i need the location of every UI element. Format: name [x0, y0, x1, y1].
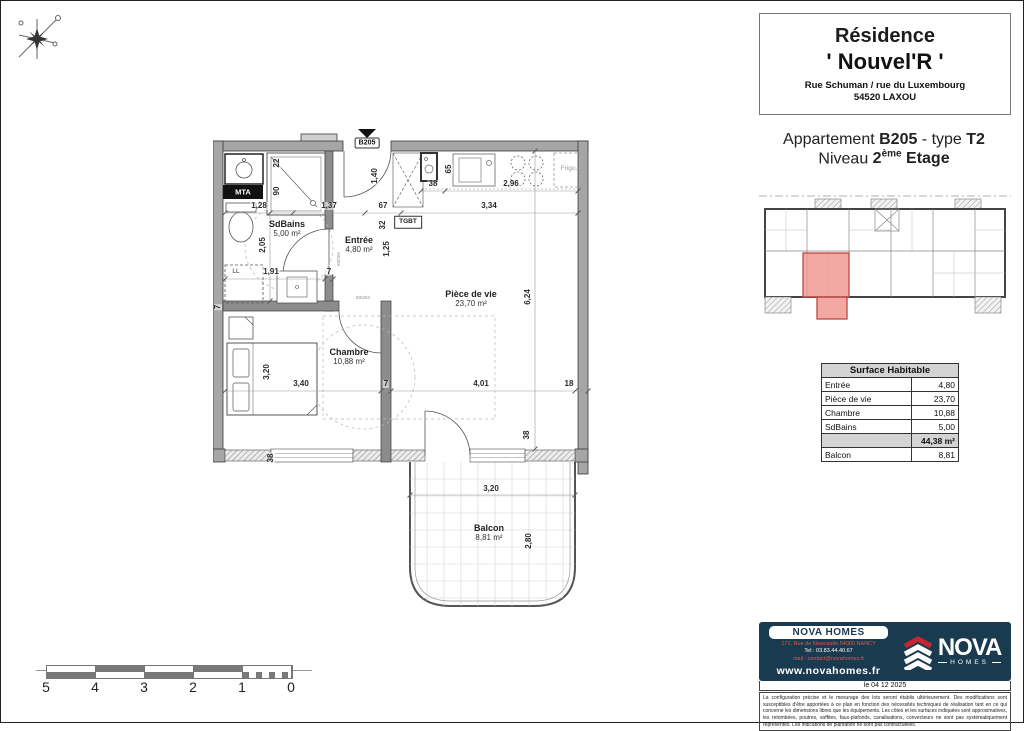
- highlighted-balcony: [817, 297, 847, 319]
- pillow: [233, 349, 249, 377]
- balcony: [410, 462, 575, 606]
- residence-name: ' Nouvel'R ': [760, 49, 1010, 75]
- surface-row-value: 44,38 m²: [912, 434, 959, 448]
- surface-row-name: Pièce de vie: [822, 392, 912, 406]
- footer-block: NOVA HOMES 171, Rue de Newcastle 54000 N…: [759, 622, 1011, 731]
- surface-row-value: 10,88: [912, 406, 959, 420]
- page-border: 22901,281,37673,34382,96651,40322,051,25…: [0, 0, 1024, 723]
- surface-table-title: Surface Habitable: [822, 364, 959, 378]
- cooktop: [511, 156, 543, 186]
- company-mail: mail : contact@novahomes.fr: [765, 656, 892, 663]
- surface-row-value: 4,80: [912, 378, 959, 392]
- compass-rose-icon: [13, 13, 63, 65]
- entry-arrow-icon: [358, 129, 376, 138]
- bedroom-furniture: [227, 317, 317, 415]
- surface-row-name: Balcon: [822, 448, 912, 462]
- company-address: 171, Rue de Newcastle 54000 NANCY: [765, 641, 892, 648]
- kitchen-fixtures: [421, 153, 584, 187]
- windows: [225, 449, 575, 462]
- apartment-line: Appartement B205 - type T2: [759, 131, 1009, 149]
- scale-number: 1: [238, 679, 246, 695]
- logo-subtitle: HOMES: [950, 659, 989, 666]
- scale-number: 4: [91, 679, 99, 695]
- bathroom-fixtures: [223, 153, 325, 303]
- residence-address: Rue Schuman / rue du Luxembourg: [760, 80, 1010, 91]
- surface-row-name: [822, 434, 912, 448]
- wc-tank: [226, 203, 256, 212]
- scale-bar-segments: [46, 665, 293, 679]
- level-line: Niveau 2ème Etage: [759, 149, 1009, 168]
- legal-disclaimer: La configuration précise et le mesurage …: [759, 692, 1011, 731]
- scale-number: 5: [42, 679, 50, 695]
- residence-label: Résidence: [760, 25, 1010, 48]
- company-tel: Tel : 03.83.44.40.67: [765, 648, 892, 655]
- washing-machine: [225, 265, 263, 303]
- residence-city: 54520 LAXOU: [760, 92, 1010, 103]
- surface-table-row: Balcon8,81: [822, 448, 959, 462]
- surface-table-row: 44,38 m²: [822, 434, 959, 448]
- plan-date: le 04 12 2025: [759, 681, 1011, 691]
- surface-table-row: SdBains5,00: [822, 420, 959, 434]
- surface-table-row: Entrée4,80: [822, 378, 959, 392]
- wc-bowl: [229, 212, 253, 242]
- mta-box: [223, 185, 263, 199]
- nightstand: [229, 317, 253, 339]
- company-name: NOVA HOMES: [792, 627, 864, 638]
- surface-table-row: Chambre10,88: [822, 406, 959, 420]
- apartment-info: Appartement B205 - type T2 Niveau 2ème E…: [759, 131, 1009, 168]
- surface-row-name: Entrée: [822, 378, 912, 392]
- surface-table-row: Pièce de vie23,70: [822, 392, 959, 406]
- surface-row-name: Chambre: [822, 406, 912, 420]
- surface-row-name: SdBains: [822, 420, 912, 434]
- scale-bar: 543210: [46, 661, 306, 697]
- scale-number: 0: [287, 679, 295, 695]
- company-website: www.novahomes.fr: [765, 665, 892, 677]
- nova-logo-icon: [902, 634, 934, 670]
- scale-number: 2: [189, 679, 197, 695]
- residence-title-box: Résidence ' Nouvel'R ' Rue Schuman / rue…: [759, 13, 1011, 115]
- tgbt-closet: [393, 153, 423, 207]
- floor-plan-drawing: [213, 129, 595, 625]
- highlighted-unit: [803, 253, 849, 297]
- surface-row-value: 23,70: [912, 392, 959, 406]
- scale-number: 3: [140, 679, 148, 695]
- surface-table: Surface Habitable Entrée4,80Pièce de vie…: [821, 363, 959, 462]
- logo-wordmark: NOVA: [938, 637, 1002, 659]
- surface-row-value: 8,81: [912, 448, 959, 462]
- nova-homes-box: NOVA HOMES 171, Rue de Newcastle 54000 N…: [759, 622, 1011, 681]
- building-key-plan: [759, 191, 1011, 333]
- scale-bar-numbers: 543210: [46, 679, 291, 695]
- company-name-pill: NOVA HOMES: [769, 626, 888, 639]
- surface-row-value: 5,00: [912, 420, 959, 434]
- pillow: [233, 383, 249, 411]
